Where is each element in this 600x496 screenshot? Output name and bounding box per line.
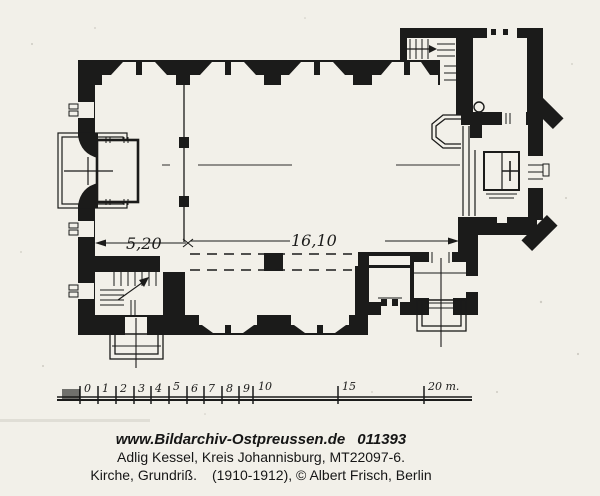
- scale-label: 3: [138, 382, 145, 395]
- pulpit: [432, 115, 461, 148]
- stair-room-top-wall: [90, 256, 160, 272]
- northeast-stair-left-wall: [400, 28, 407, 63]
- sacristy-west-wall: [456, 33, 473, 125]
- west-window-2: [77, 221, 94, 237]
- subject-text: Kirche, Grundriß.: [90, 467, 197, 483]
- scale-hatch-block: [63, 389, 79, 400]
- church-floor-plan-drawing: 5,20 16,10 0 1 2 3 4 5 6 7 8 9 10 15 20 …: [0, 0, 600, 425]
- scale-label: 8: [226, 382, 233, 395]
- scale-label: 7: [208, 382, 215, 395]
- caption-location-line: Adlig Kessel, Kreis Johannisburg, MT2209…: [0, 449, 522, 465]
- scale-label: 10: [258, 380, 272, 393]
- scale-labels: 0 1 2 3 4 5 6 7 8 9 10 15 20 m.: [84, 380, 459, 395]
- scale-label: 20 m.: [427, 380, 459, 393]
- scale-label: 5: [173, 380, 180, 393]
- scale-label: 15: [342, 380, 356, 393]
- sacristy-room: [473, 38, 527, 112]
- scale-label: 1: [102, 382, 109, 395]
- dimension-label-west: 5,20: [126, 234, 162, 253]
- caption-archive-line: www.Bildarchiv-Ostpreussen.de011393: [0, 431, 522, 448]
- scale-label: 4: [154, 382, 162, 395]
- chancel-steps: [463, 126, 475, 216]
- credit-text: (1910-1912), © Albert Frisch, Berlin: [212, 467, 432, 483]
- scale-label: 0: [84, 382, 91, 395]
- archive-number: 011393: [357, 431, 406, 448]
- pulpit-stair-block: [470, 125, 482, 138]
- west-window-1: [77, 102, 94, 118]
- annex-porch-room: [414, 262, 466, 298]
- scale-label: 6: [191, 382, 198, 395]
- scale-ticks: [80, 386, 424, 404]
- southwest-stairs: [100, 272, 156, 316]
- scale-label: 2: [119, 382, 127, 395]
- caption-subject-line: Kirche, Grundriß.(1910-1912), © Albert F…: [0, 467, 522, 483]
- west-annex-outline: [58, 133, 138, 208]
- scale-label: 9: [243, 382, 250, 395]
- stair-room-right-wall: [163, 272, 185, 318]
- altar: [484, 152, 519, 198]
- scanned-archive-page: 5,20 16,10 0 1 2 3 4 5 6 7 8 9 10 15 20 …: [0, 0, 600, 496]
- archive-url: www.Bildarchiv-Ostpreussen.de: [116, 431, 346, 448]
- dimension-label-nave: 16,10: [291, 231, 337, 250]
- gallery-pillar: [264, 253, 283, 271]
- location-text: Adlig Kessel, Kreis Johannisburg, MT2209…: [117, 449, 405, 465]
- annex-east-window: [466, 276, 481, 292]
- dimension-annotations: 5,20 16,10: [95, 231, 459, 253]
- west-window-3: [77, 283, 94, 299]
- scale-bar: 0 1 2 3 4 5 6 7 8 9 10 15 20 m.: [57, 380, 472, 404]
- sacristy-stove: [474, 102, 484, 112]
- annex-vestibule-room: [369, 256, 410, 302]
